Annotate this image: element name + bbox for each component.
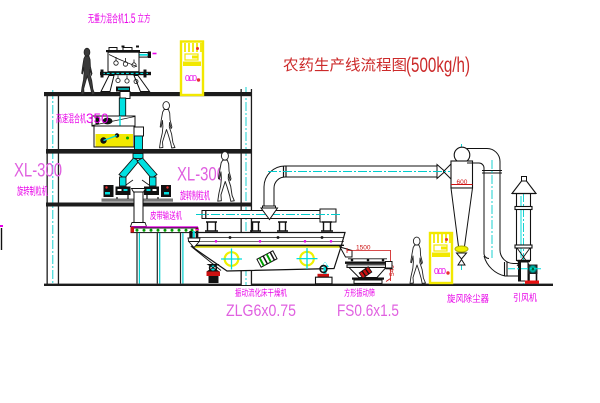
svg-text:0.00: 0.00: [185, 73, 197, 83]
svg-text:0.00: 0.00: [434, 266, 446, 276]
svg-text:ZLG6x0.75: ZLG6x0.75: [226, 301, 296, 320]
svg-text:350: 350: [86, 111, 109, 126]
svg-text:高速混合机: 高速混合机: [56, 112, 86, 125]
svg-text:600: 600: [457, 179, 468, 186]
svg-text:FS0.6x1.5: FS0.6x1.5: [337, 301, 399, 320]
svg-text:无重力混合机: 无重力混合机: [88, 12, 124, 25]
svg-text:XL-300: XL-300: [14, 161, 62, 182]
svg-text:1500: 1500: [356, 245, 371, 252]
svg-text:方形振动筛: 方形振动筛: [344, 287, 375, 298]
svg-text:(500kg/h): (500kg/h): [406, 54, 470, 77]
svg-text:振动流化床干燥机: 振动流化床干燥机: [235, 287, 287, 298]
svg-text:旋转制粒机: 旋转制粒机: [180, 189, 210, 202]
svg-text:农药生产线流程图: 农药生产线流程图: [283, 57, 407, 74]
svg-text:1.5: 1.5: [124, 11, 136, 26]
svg-text:旋风除尘器: 旋风除尘器: [447, 293, 489, 305]
svg-text:皮带输送机: 皮带输送机: [150, 210, 182, 222]
svg-text:旋转制粒机: 旋转制粒机: [17, 185, 48, 198]
svg-text:立方: 立方: [138, 12, 151, 25]
svg-text:XL-300: XL-300: [177, 165, 225, 186]
svg-text:引风机: 引风机: [513, 292, 537, 304]
